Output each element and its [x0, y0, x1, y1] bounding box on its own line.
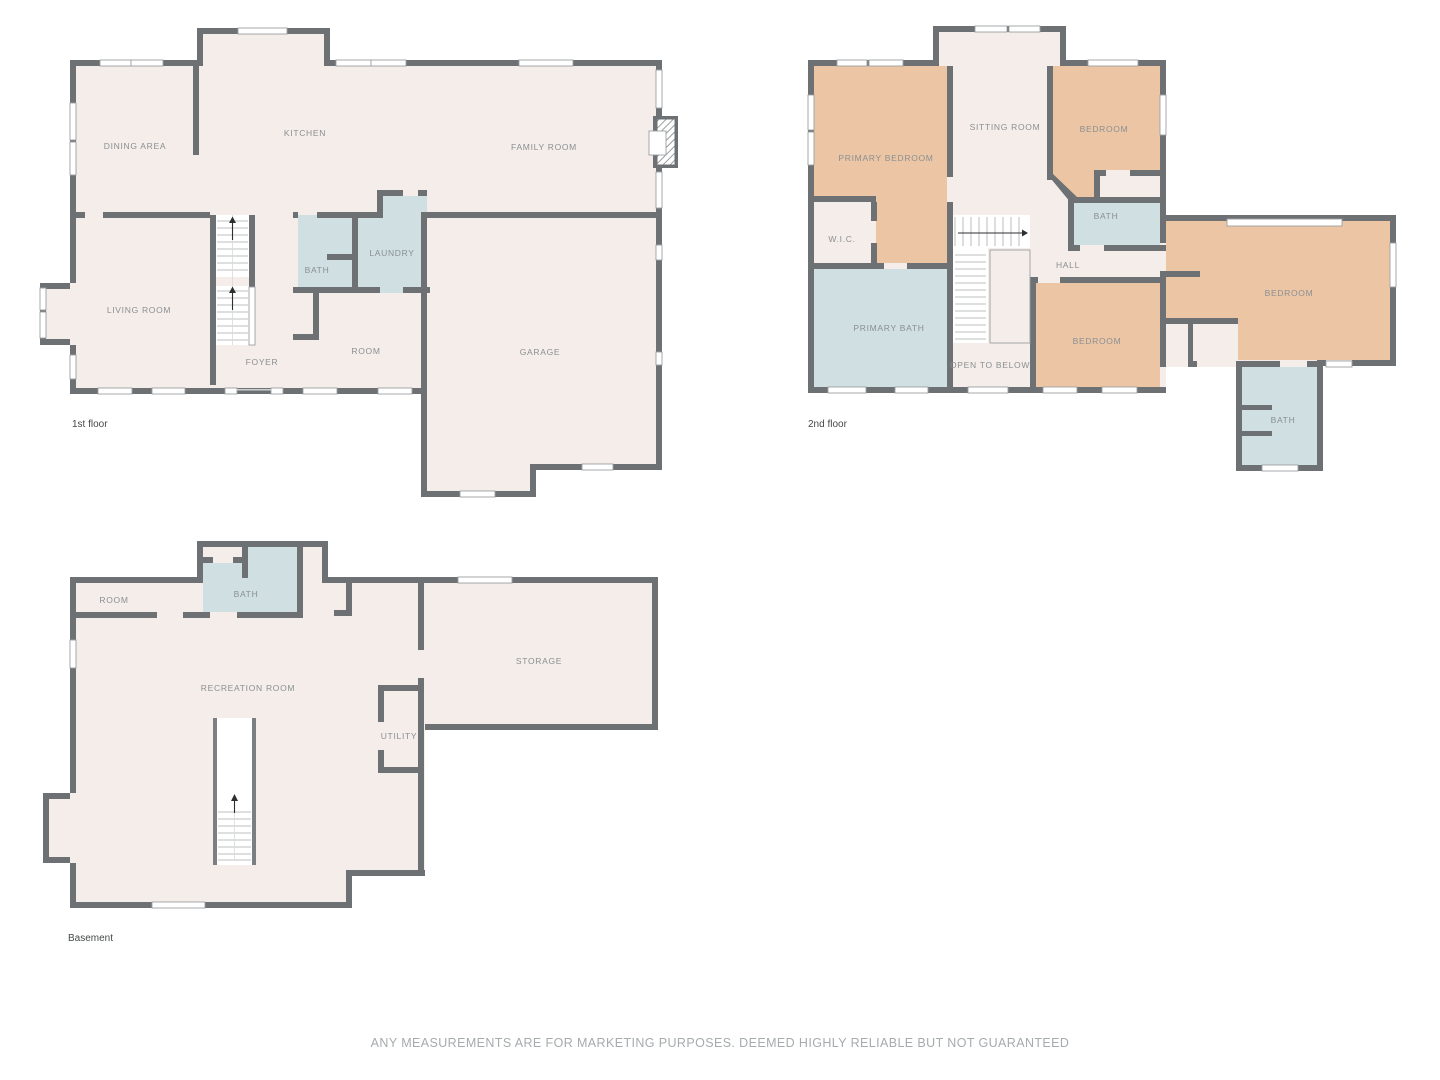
- room-label-room-1f: ROOM: [351, 346, 380, 356]
- bedroom-builtin-closet: [1227, 219, 1342, 226]
- basement-stairs: [213, 718, 256, 865]
- front-door-threshold: [237, 389, 271, 391]
- room-label-bedroom-right: BEDROOM: [1265, 288, 1314, 298]
- room-label-bedroom-top: BEDROOM: [1080, 124, 1129, 134]
- second-floor-plan: PRIMARY BEDROOM SITTING ROOM BEDROOM W.I…: [808, 26, 1396, 471]
- room-label-hall: HALL: [1056, 260, 1080, 270]
- room-label-storage: STORAGE: [516, 656, 562, 666]
- room-label-room-bsmt: ROOM: [99, 595, 128, 605]
- floor-label-second: 2nd floor: [808, 419, 848, 430]
- room-label-garage: GARAGE: [520, 347, 561, 357]
- room-label-primary-bedroom: PRIMARY BEDROOM: [838, 153, 933, 163]
- room-label-living: LIVING ROOM: [107, 305, 171, 315]
- room-label-bath-right: BATH: [1271, 415, 1296, 425]
- room-label-open-below: OPEN TO BELOW: [950, 360, 1030, 370]
- disclaimer-text: ANY MEASUREMENTS ARE FOR MARKETING PURPO…: [371, 1036, 1070, 1050]
- room-label-recreation: RECREATION ROOM: [201, 683, 295, 693]
- room-label-family: FAMILY ROOM: [511, 142, 577, 152]
- room-label-sitting: SITTING ROOM: [970, 122, 1041, 132]
- room-label-bath-1f: BATH: [305, 265, 330, 275]
- room-label-dining: DINING AREA: [104, 141, 167, 151]
- basement-plan: ROOM BATH RECREATION ROOM STORAGE UTILIT…: [43, 541, 658, 944]
- first-floor-plan: DINING AREA KITCHEN FAMILY ROOM LIVING R…: [40, 28, 678, 497]
- bedroom-mid-fill: [1036, 283, 1160, 387]
- room-label-bedroom-mid: BEDROOM: [1073, 336, 1122, 346]
- floor-label-first: 1st floor: [72, 419, 108, 430]
- room-label-bath-bsmt: BATH: [234, 589, 259, 599]
- room-label-primary-bath: PRIMARY BATH: [853, 323, 924, 333]
- room-label-foyer: FOYER: [246, 357, 279, 367]
- floorplan-canvas: DINING AREA KITCHEN FAMILY ROOM LIVING R…: [0, 0, 1440, 1080]
- fireplace-icon: [649, 116, 678, 168]
- bath-mid-fill: [1074, 203, 1160, 245]
- room-label-bath-mid: BATH: [1094, 211, 1119, 221]
- second-floor-stairs: [953, 215, 1030, 343]
- room-label-laundry: LAUNDRY: [369, 248, 414, 258]
- room-label-utility: UTILITY: [381, 731, 418, 741]
- floorplan-sheet: DINING AREA KITCHEN FAMILY ROOM LIVING R…: [0, 0, 1440, 1080]
- room-label-wic: W.I.C.: [828, 234, 855, 244]
- floor-label-basement: Basement: [68, 933, 113, 944]
- room-label-kitchen: KITCHEN: [284, 128, 326, 138]
